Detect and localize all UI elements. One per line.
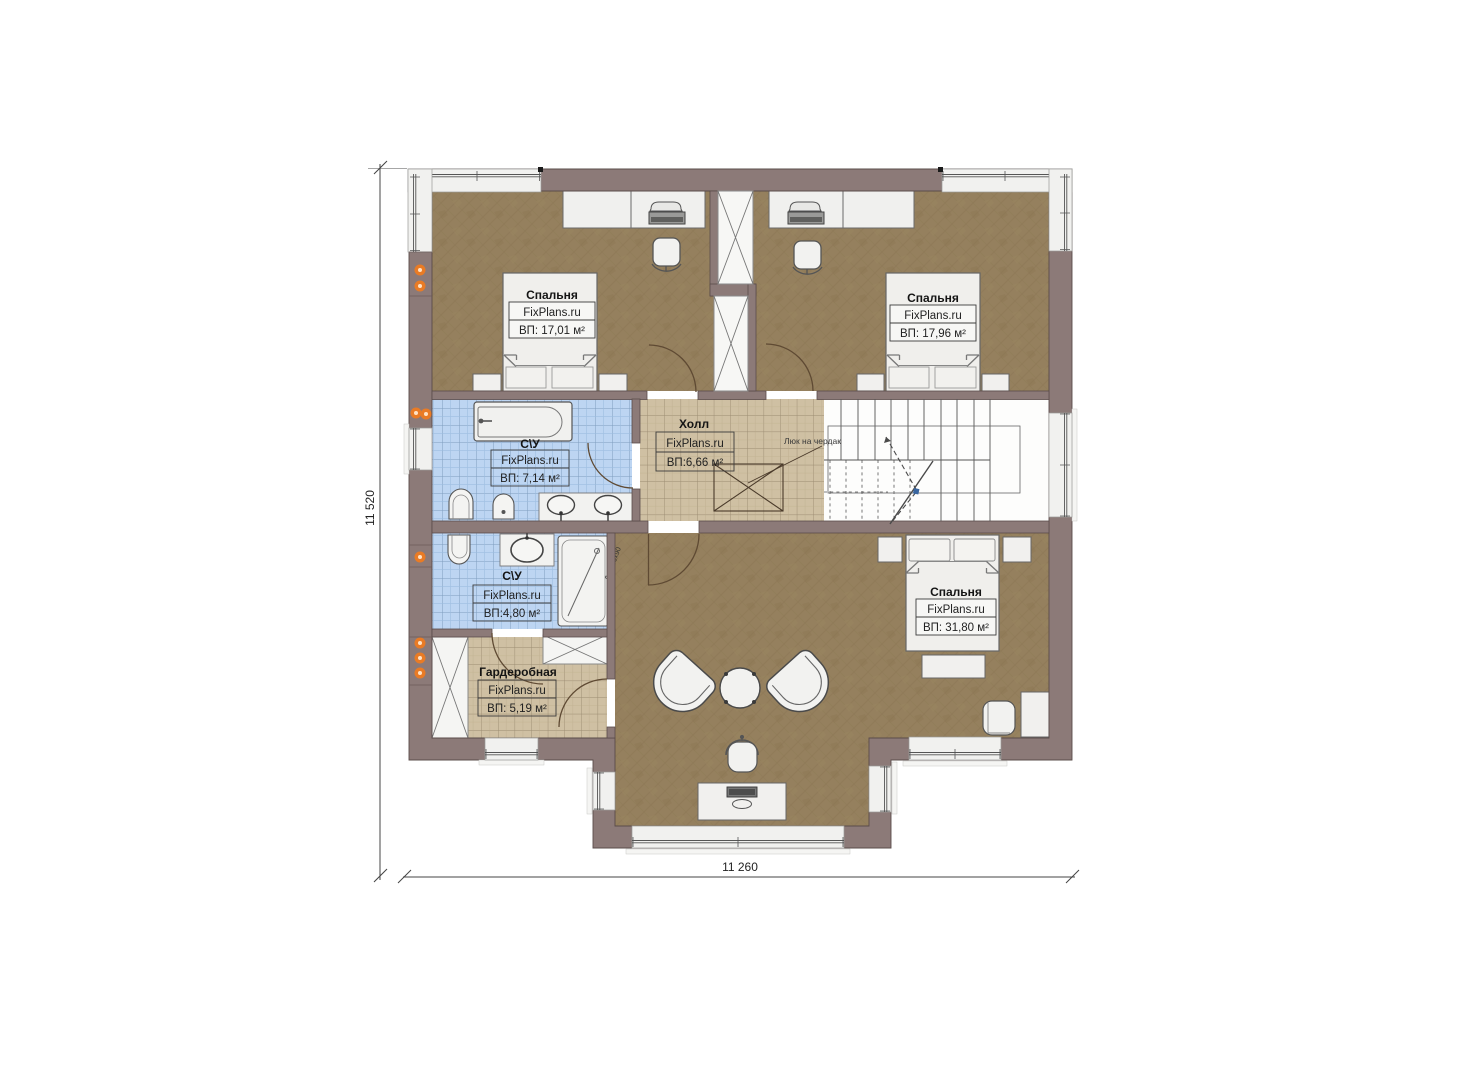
svg-text:FixPlans.ru: FixPlans.ru xyxy=(501,455,559,467)
svg-text:ВП: 17,96 м²: ВП: 17,96 м² xyxy=(900,328,966,340)
svg-text:Спальня: Спальня xyxy=(907,291,959,305)
svg-text:ВП: 5,19 м²: ВП: 5,19 м² xyxy=(487,703,547,715)
svg-text:ВП:6,66 м²: ВП:6,66 м² xyxy=(667,457,724,469)
svg-text:С\У: С\У xyxy=(502,569,522,583)
svg-text:FixPlans.ru: FixPlans.ru xyxy=(483,590,541,602)
svg-text:С\У: С\У xyxy=(520,437,540,451)
svg-text:Спальня: Спальня xyxy=(526,288,578,302)
svg-text:ВП: 31,80 м²: ВП: 31,80 м² xyxy=(923,622,989,634)
svg-text:11 260: 11 260 xyxy=(722,860,758,874)
svg-text:FixPlans.ru: FixPlans.ru xyxy=(666,438,724,450)
svg-text:Спальня: Спальня xyxy=(930,585,982,599)
svg-text:FixPlans.ru: FixPlans.ru xyxy=(927,604,985,616)
svg-text:FixPlans.ru: FixPlans.ru xyxy=(488,685,546,697)
svg-text:Гардеробная: Гардеробная xyxy=(479,665,557,679)
svg-text:FixPlans.ru: FixPlans.ru xyxy=(523,307,581,319)
svg-text:Холл: Холл xyxy=(679,417,709,431)
svg-text:ВП:4,80 м²: ВП:4,80 м² xyxy=(484,608,541,620)
svg-text:ВП: 7,14 м²: ВП: 7,14 м² xyxy=(500,473,560,485)
svg-text:Люк на чердак: Люк на чердак xyxy=(784,436,841,446)
svg-text:ВП: 17,01 м²: ВП: 17,01 м² xyxy=(519,325,585,337)
svg-text:11 520: 11 520 xyxy=(363,490,377,526)
svg-text:FixPlans.ru: FixPlans.ru xyxy=(904,310,962,322)
